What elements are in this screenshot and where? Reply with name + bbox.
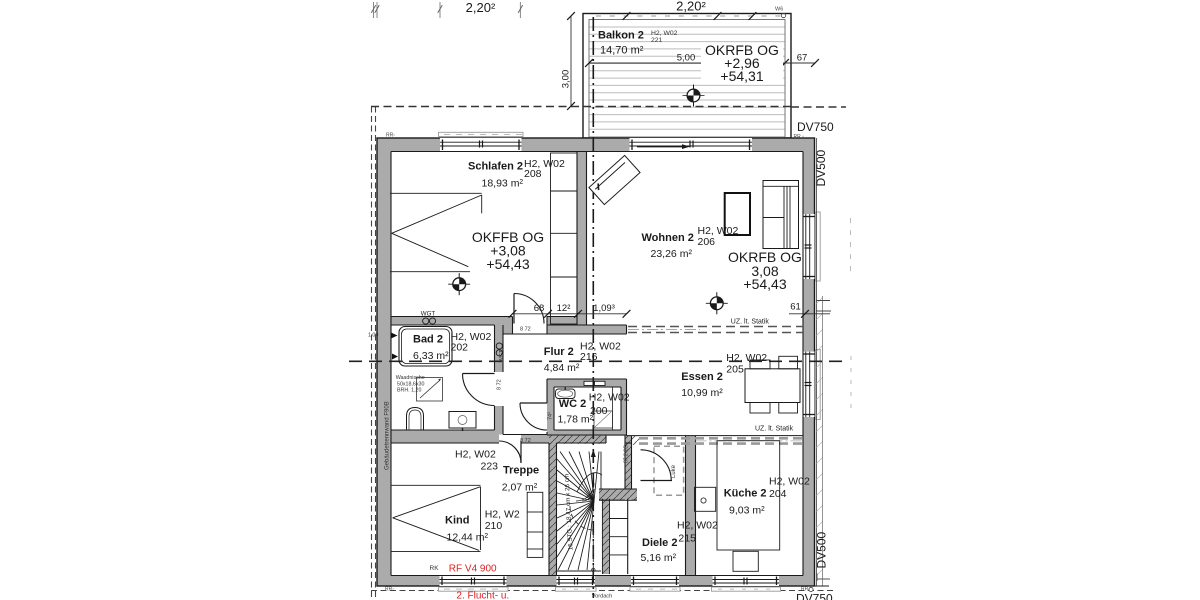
svg-text:RK: RK <box>430 565 440 572</box>
svg-text:DV500: DV500 <box>814 149 828 186</box>
svg-text:2,07 m²: 2,07 m² <box>502 482 538 494</box>
svg-text:18,93 m²: 18,93 m² <box>482 178 524 190</box>
svg-text:8 72: 8 72 <box>497 379 503 390</box>
svg-text:RR ▫: RR ▫ <box>794 134 805 140</box>
svg-text:H2, W2: H2, W2 <box>485 509 520 521</box>
svg-text:8 72: 8 72 <box>520 327 531 333</box>
svg-text:1,00: 1,00 <box>368 333 378 339</box>
svg-text:216: 216 <box>580 351 598 363</box>
svg-text:Vordach: Vordach <box>592 594 613 600</box>
svg-text:DV750: DV750 <box>796 592 833 600</box>
svg-text:12²: 12² <box>557 303 571 314</box>
svg-text:1,78 m²: 1,78 m² <box>558 414 594 426</box>
svg-text:61: 61 <box>790 302 801 313</box>
svg-text:H2, W02: H2, W02 <box>589 392 630 404</box>
svg-text:205: 205 <box>726 364 744 376</box>
svg-text:210: 210 <box>485 520 503 532</box>
svg-text:Flur 2: Flur 2 <box>544 346 574 358</box>
svg-text:H2, W02: H2, W02 <box>769 476 810 488</box>
svg-text:Waadnische: Waadnische <box>396 375 425 381</box>
svg-text:WGT: WGT <box>421 311 436 318</box>
svg-text:74²: 74² <box>548 412 554 420</box>
svg-text:5,16 m²: 5,16 m² <box>641 552 677 564</box>
svg-text:2,20²: 2,20² <box>676 0 706 14</box>
svg-text:5,00: 5,00 <box>677 53 696 64</box>
svg-text:12,44 m²: 12,44 m² <box>447 532 489 544</box>
svg-text:Balkon 2: Balkon 2 <box>598 30 644 42</box>
svg-text:Kind: Kind <box>445 515 469 527</box>
svg-text:3,00: 3,00 <box>561 70 572 89</box>
svg-text:223: 223 <box>481 461 499 473</box>
svg-text:68: 68 <box>534 303 545 314</box>
svg-text:WC 2: WC 2 <box>559 398 587 410</box>
svg-text:+54,31: +54,31 <box>720 68 763 84</box>
svg-text:Diele 2: Diele 2 <box>642 537 677 549</box>
svg-text:23,26 m²: 23,26 m² <box>651 248 693 260</box>
svg-text:WGT: WGT <box>499 349 505 362</box>
svg-text:221: 221 <box>651 37 663 44</box>
svg-text:10,99 m²: 10,99 m² <box>681 387 723 399</box>
svg-text:6,33 m²: 6,33 m² <box>413 350 449 362</box>
svg-text:9,03 m²: 9,03 m² <box>729 505 765 517</box>
svg-text:67: 67 <box>797 53 808 64</box>
svg-text:14,70 m²: 14,70 m² <box>600 45 644 57</box>
svg-text:1,09³: 1,09³ <box>593 303 615 314</box>
svg-text:Küche 2: Küche 2 <box>724 488 767 500</box>
svg-text:87 2-2G: 87 2-2G <box>624 445 630 463</box>
svg-text:DV500: DV500 <box>815 531 829 568</box>
svg-text:215: 215 <box>678 533 696 545</box>
svg-text:+54,43: +54,43 <box>486 256 529 272</box>
svg-text:Treppe: Treppe <box>503 465 539 477</box>
svg-text:RR: RR <box>801 587 809 593</box>
svg-text:RR▫: RR▫ <box>385 587 394 593</box>
svg-text:UZ. lt. Statik: UZ. lt. Statik <box>755 426 794 433</box>
svg-text:H2, W02: H2, W02 <box>726 352 767 364</box>
svg-text:W6: W6 <box>775 7 783 13</box>
svg-text:H2, W02: H2, W02 <box>651 30 678 37</box>
svg-text:Schlafen 2: Schlafen 2 <box>468 161 523 173</box>
svg-text:206: 206 <box>698 236 716 248</box>
svg-text:202: 202 <box>451 342 469 354</box>
svg-text:4,84 m²: 4,84 m² <box>544 362 580 374</box>
svg-text:BRH. 1,20: BRH. 1,20 <box>397 388 421 394</box>
svg-text:RF V4 900: RF V4 900 <box>449 564 497 575</box>
svg-text:204: 204 <box>769 488 787 500</box>
svg-text:H2, W02: H2, W02 <box>677 520 718 532</box>
svg-text:H2, W02: H2, W02 <box>455 449 496 461</box>
svg-text:RR▫: RR▫ <box>386 133 395 139</box>
svg-text:8 72: 8 72 <box>520 438 531 444</box>
svg-text:208: 208 <box>524 168 542 180</box>
svg-text:UZ. lt. Statik: UZ. lt. Statik <box>731 319 770 326</box>
svg-text:DV750: DV750 <box>797 120 834 134</box>
svg-text:Wohnen 2: Wohnen 2 <box>642 232 694 244</box>
svg-text:+54,43: +54,43 <box>743 276 786 292</box>
svg-text:Bad 2: Bad 2 <box>413 334 443 346</box>
svg-text:Essen 2: Essen 2 <box>681 371 723 383</box>
svg-text:Gebäudetrennwand F90B: Gebäudetrennwand F90B <box>385 401 391 470</box>
svg-text:2,20²: 2,20² <box>466 0 496 15</box>
svg-text:Luke: Luke <box>671 464 677 478</box>
